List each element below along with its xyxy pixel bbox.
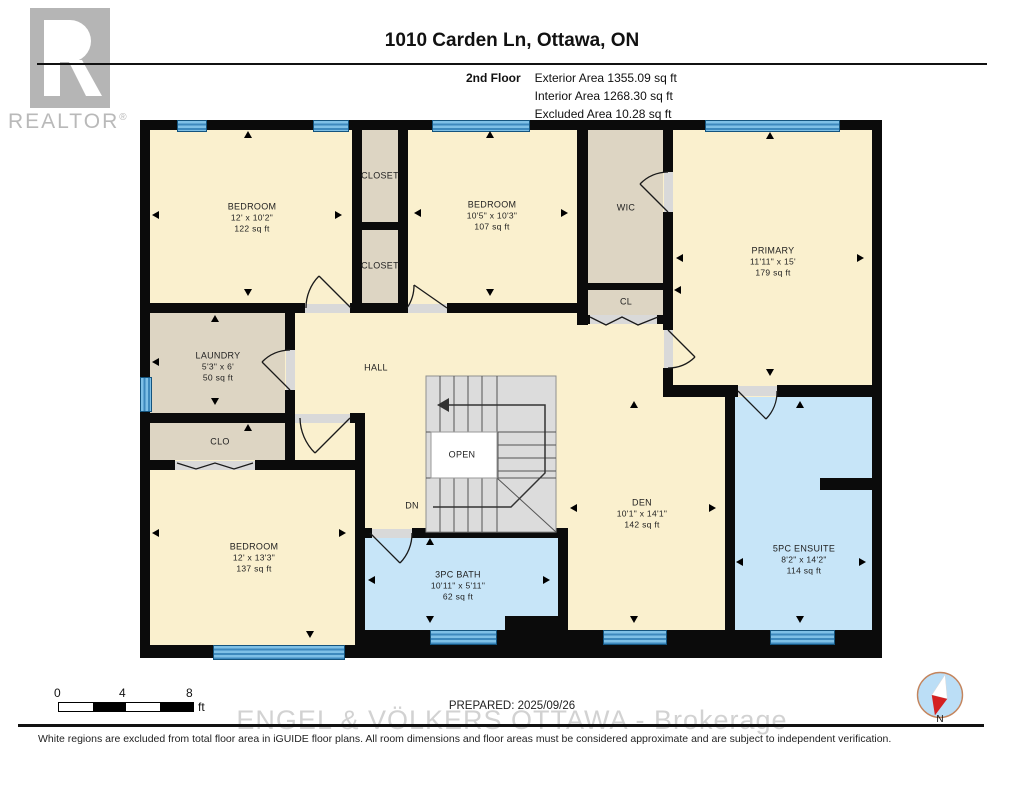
dim-arrow xyxy=(306,631,314,638)
compass-icon: N xyxy=(915,670,967,724)
room-label-bedroom-1: BEDROOM12' x 10'2"122 sq ft xyxy=(228,202,277,235)
dim-arrow xyxy=(766,369,774,376)
dim-arrow xyxy=(561,209,568,217)
disclaimer-text: White regions are excluded from total fl… xyxy=(38,733,1008,745)
room-label-closet-1: CLOSET xyxy=(361,171,399,182)
room-label-ensuite: 5PC ENSUITE8'2" x 14'2"114 sq ft xyxy=(773,544,835,577)
dim-arrow xyxy=(857,254,864,262)
exterior-area: Exterior Area 1355.09 sq ft xyxy=(535,69,677,87)
floor-areas: Exterior Area 1355.09 sq ft Interior Are… xyxy=(535,69,677,123)
stairs-open-label: OPEN xyxy=(449,450,476,461)
dim-arrow xyxy=(211,315,219,322)
realtor-logo xyxy=(28,8,112,110)
room-label-bath: 3PC BATH10'11" x 5'11"62 sq ft xyxy=(431,570,485,603)
room-label-bedroom-3: BEDROOM12' x 13'3"137 sq ft xyxy=(230,542,279,575)
dim-arrow xyxy=(152,529,159,537)
dim-arrow xyxy=(543,576,550,584)
interior-area: Interior Area 1268.30 sq ft xyxy=(535,87,677,105)
scale-tick-4: 4 xyxy=(119,686,126,700)
compass-n-label: N xyxy=(936,714,943,724)
room-label-closet-2: CLOSET xyxy=(361,261,399,272)
dim-arrow xyxy=(244,131,252,138)
dim-arrow xyxy=(152,358,159,366)
dim-arrow xyxy=(335,211,342,219)
floorplan-page: REALTOR® 1010 Carden Ln, Ottawa, ON 2nd … xyxy=(0,0,1024,791)
footer-divider xyxy=(18,724,984,727)
room-label-bedroom-2: BEDROOM10'5" x 10'3"107 sq ft xyxy=(467,200,518,233)
dim-arrow xyxy=(570,504,577,512)
dim-arrow xyxy=(796,616,804,623)
floor-summary: 2nd Floor Exterior Area 1355.09 sq ft In… xyxy=(466,69,677,123)
floor-label: 2nd Floor xyxy=(466,69,521,123)
brokerage-watermark: ENGEL & VÖLKERS OTTAWA - Brokerage xyxy=(0,705,1024,736)
room-label-clo: CLO xyxy=(210,437,229,448)
dim-arrow xyxy=(426,616,434,623)
title-divider xyxy=(37,63,987,65)
dim-arrow xyxy=(486,289,494,296)
dim-arrow xyxy=(630,616,638,623)
dim-arrow xyxy=(766,132,774,139)
floorplan: BEDROOM12' x 10'2"122 sq ft CLOSET CLOSE… xyxy=(140,118,885,663)
room-label-cl: CL xyxy=(620,297,632,308)
dim-arrow xyxy=(796,401,804,408)
room-label-den: DEN10'1" x 14'1"142 sq ft xyxy=(617,498,668,531)
dim-arrow xyxy=(244,289,252,296)
dim-arrow xyxy=(339,529,346,537)
dim-arrow xyxy=(676,254,683,262)
dim-arrow xyxy=(859,558,866,566)
dim-arrow xyxy=(486,131,494,138)
scale-tick-0: 0 xyxy=(54,686,61,700)
room-label-hall: HALL xyxy=(364,363,388,374)
room-label-laundry: LAUNDRY5'3" x 6'50 sq ft xyxy=(196,351,241,384)
dim-arrow xyxy=(736,558,743,566)
realtor-wordmark: REALTOR® xyxy=(8,110,129,134)
dim-arrow xyxy=(368,576,375,584)
dim-arrow xyxy=(709,504,716,512)
dim-arrow xyxy=(630,401,638,408)
dim-arrow xyxy=(414,209,421,217)
dim-arrow xyxy=(674,286,681,294)
dim-arrow xyxy=(244,424,252,431)
scale-tick-8: 8 xyxy=(186,686,193,700)
dim-arrow xyxy=(152,211,159,219)
stairs-dn-label: DN xyxy=(405,501,419,512)
dim-arrow xyxy=(426,538,434,545)
page-title: 1010 Carden Ln, Ottawa, ON xyxy=(0,30,1024,52)
room-label-primary: PRIMARY11'11" x 15'179 sq ft xyxy=(750,246,796,279)
room-label-wic: WIC xyxy=(617,203,635,214)
dim-arrow xyxy=(211,398,219,405)
